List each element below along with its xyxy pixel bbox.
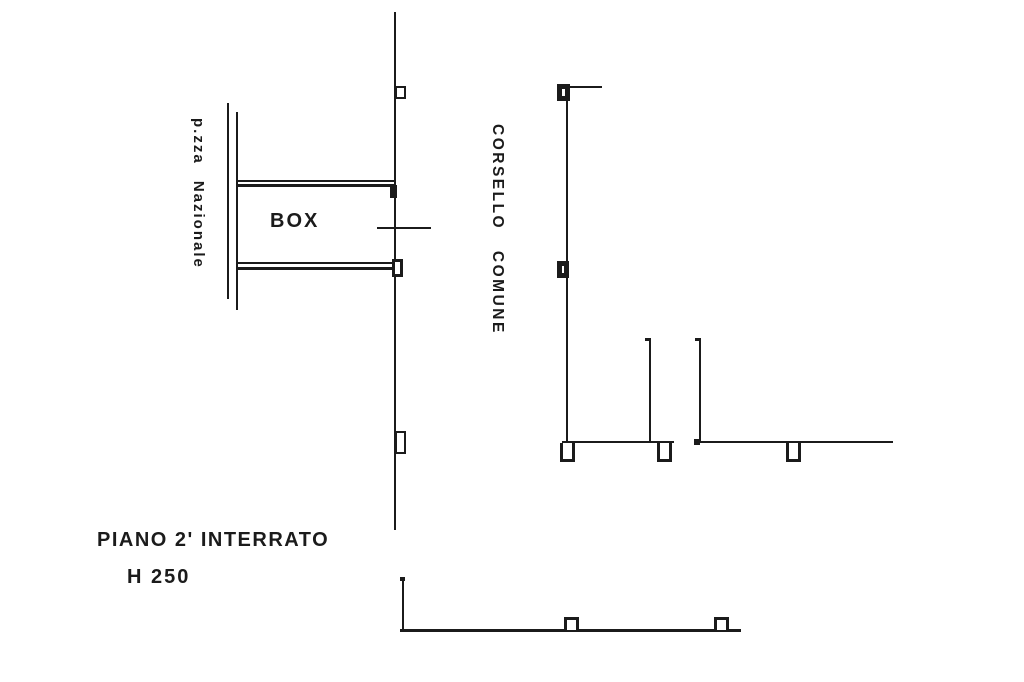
wall-box-bottom <box>237 262 394 270</box>
wall-corner-blob <box>694 439 700 445</box>
street-label: p.zza Nazionale <box>190 118 207 269</box>
wall-right-cap <box>695 338 701 341</box>
column-symbol <box>557 261 569 278</box>
wall-box-top <box>237 180 394 187</box>
wall-stub-vertical <box>649 339 651 443</box>
column-symbol <box>560 443 575 462</box>
wall-corsello-top <box>566 86 602 88</box>
wall-right-vertical <box>699 339 701 443</box>
wall-left-inner <box>236 112 238 310</box>
floor-title: PIANO 2' INTERRATO <box>97 529 329 552</box>
column-symbol <box>786 443 801 462</box>
column-symbol <box>395 86 406 99</box>
floor-plan-canvas: p.zza Nazionale CORSELLO COMUNE BOX PIAN… <box>0 0 1024 682</box>
wall-bottom-vertical <box>402 578 404 631</box>
column-symbol <box>557 84 570 101</box>
column-symbol <box>714 617 729 630</box>
column-symbol <box>657 443 672 462</box>
height-note: H 250 <box>127 566 190 589</box>
door-tick <box>377 227 431 229</box>
corridor-label: CORSELLO COMUNE <box>488 124 506 335</box>
room-label-box: BOX <box>270 210 319 233</box>
column-symbol <box>564 617 579 630</box>
column-symbol <box>390 185 397 198</box>
wall-left-outer <box>227 103 229 299</box>
wall-stub-cap <box>645 338 651 341</box>
wall-bottom-cap <box>400 577 405 581</box>
column-symbol <box>395 431 406 454</box>
column-symbol <box>392 259 403 277</box>
